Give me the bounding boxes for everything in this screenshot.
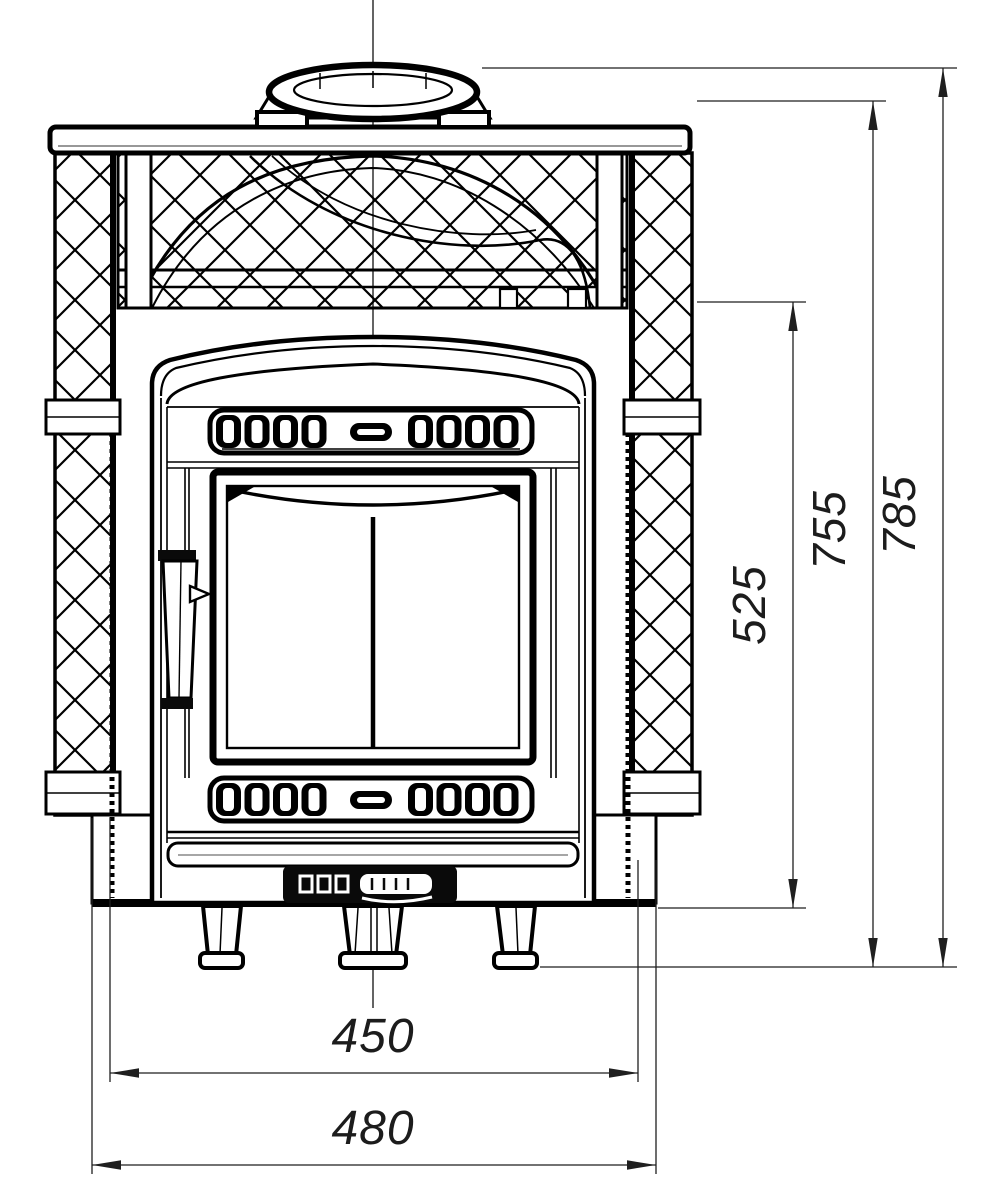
chimney-collar bbox=[256, 65, 490, 127]
vent-damper-knob-bottom bbox=[350, 791, 392, 809]
door-skirt bbox=[168, 843, 578, 866]
door-window bbox=[213, 472, 533, 762]
stone-mesh-front bbox=[118, 153, 627, 308]
dim-label-525: 525 bbox=[723, 565, 775, 645]
brand-logo-plate bbox=[283, 866, 457, 903]
cage-post-left bbox=[126, 153, 151, 308]
drawing-canvas: 525 755 785 450 480 bbox=[0, 0, 999, 1203]
dim-label-785: 785 bbox=[873, 475, 925, 555]
leg-center bbox=[344, 906, 402, 955]
stove-legs bbox=[200, 906, 537, 968]
vent-panel-bottom bbox=[210, 778, 532, 821]
side-wall-right bbox=[624, 153, 700, 815]
dim-label-755: 755 bbox=[803, 490, 855, 570]
vent-panel-top bbox=[210, 410, 532, 453]
cage-post-right bbox=[597, 153, 622, 308]
vent-damper-knob-top bbox=[350, 423, 392, 441]
dim-label-450: 450 bbox=[331, 1010, 414, 1063]
side-wall-left bbox=[46, 153, 120, 815]
stove-front-view-drawing: 525 755 785 450 480 bbox=[0, 0, 999, 1203]
top-shelf bbox=[50, 127, 690, 153]
dim-label-480: 480 bbox=[331, 1102, 414, 1155]
